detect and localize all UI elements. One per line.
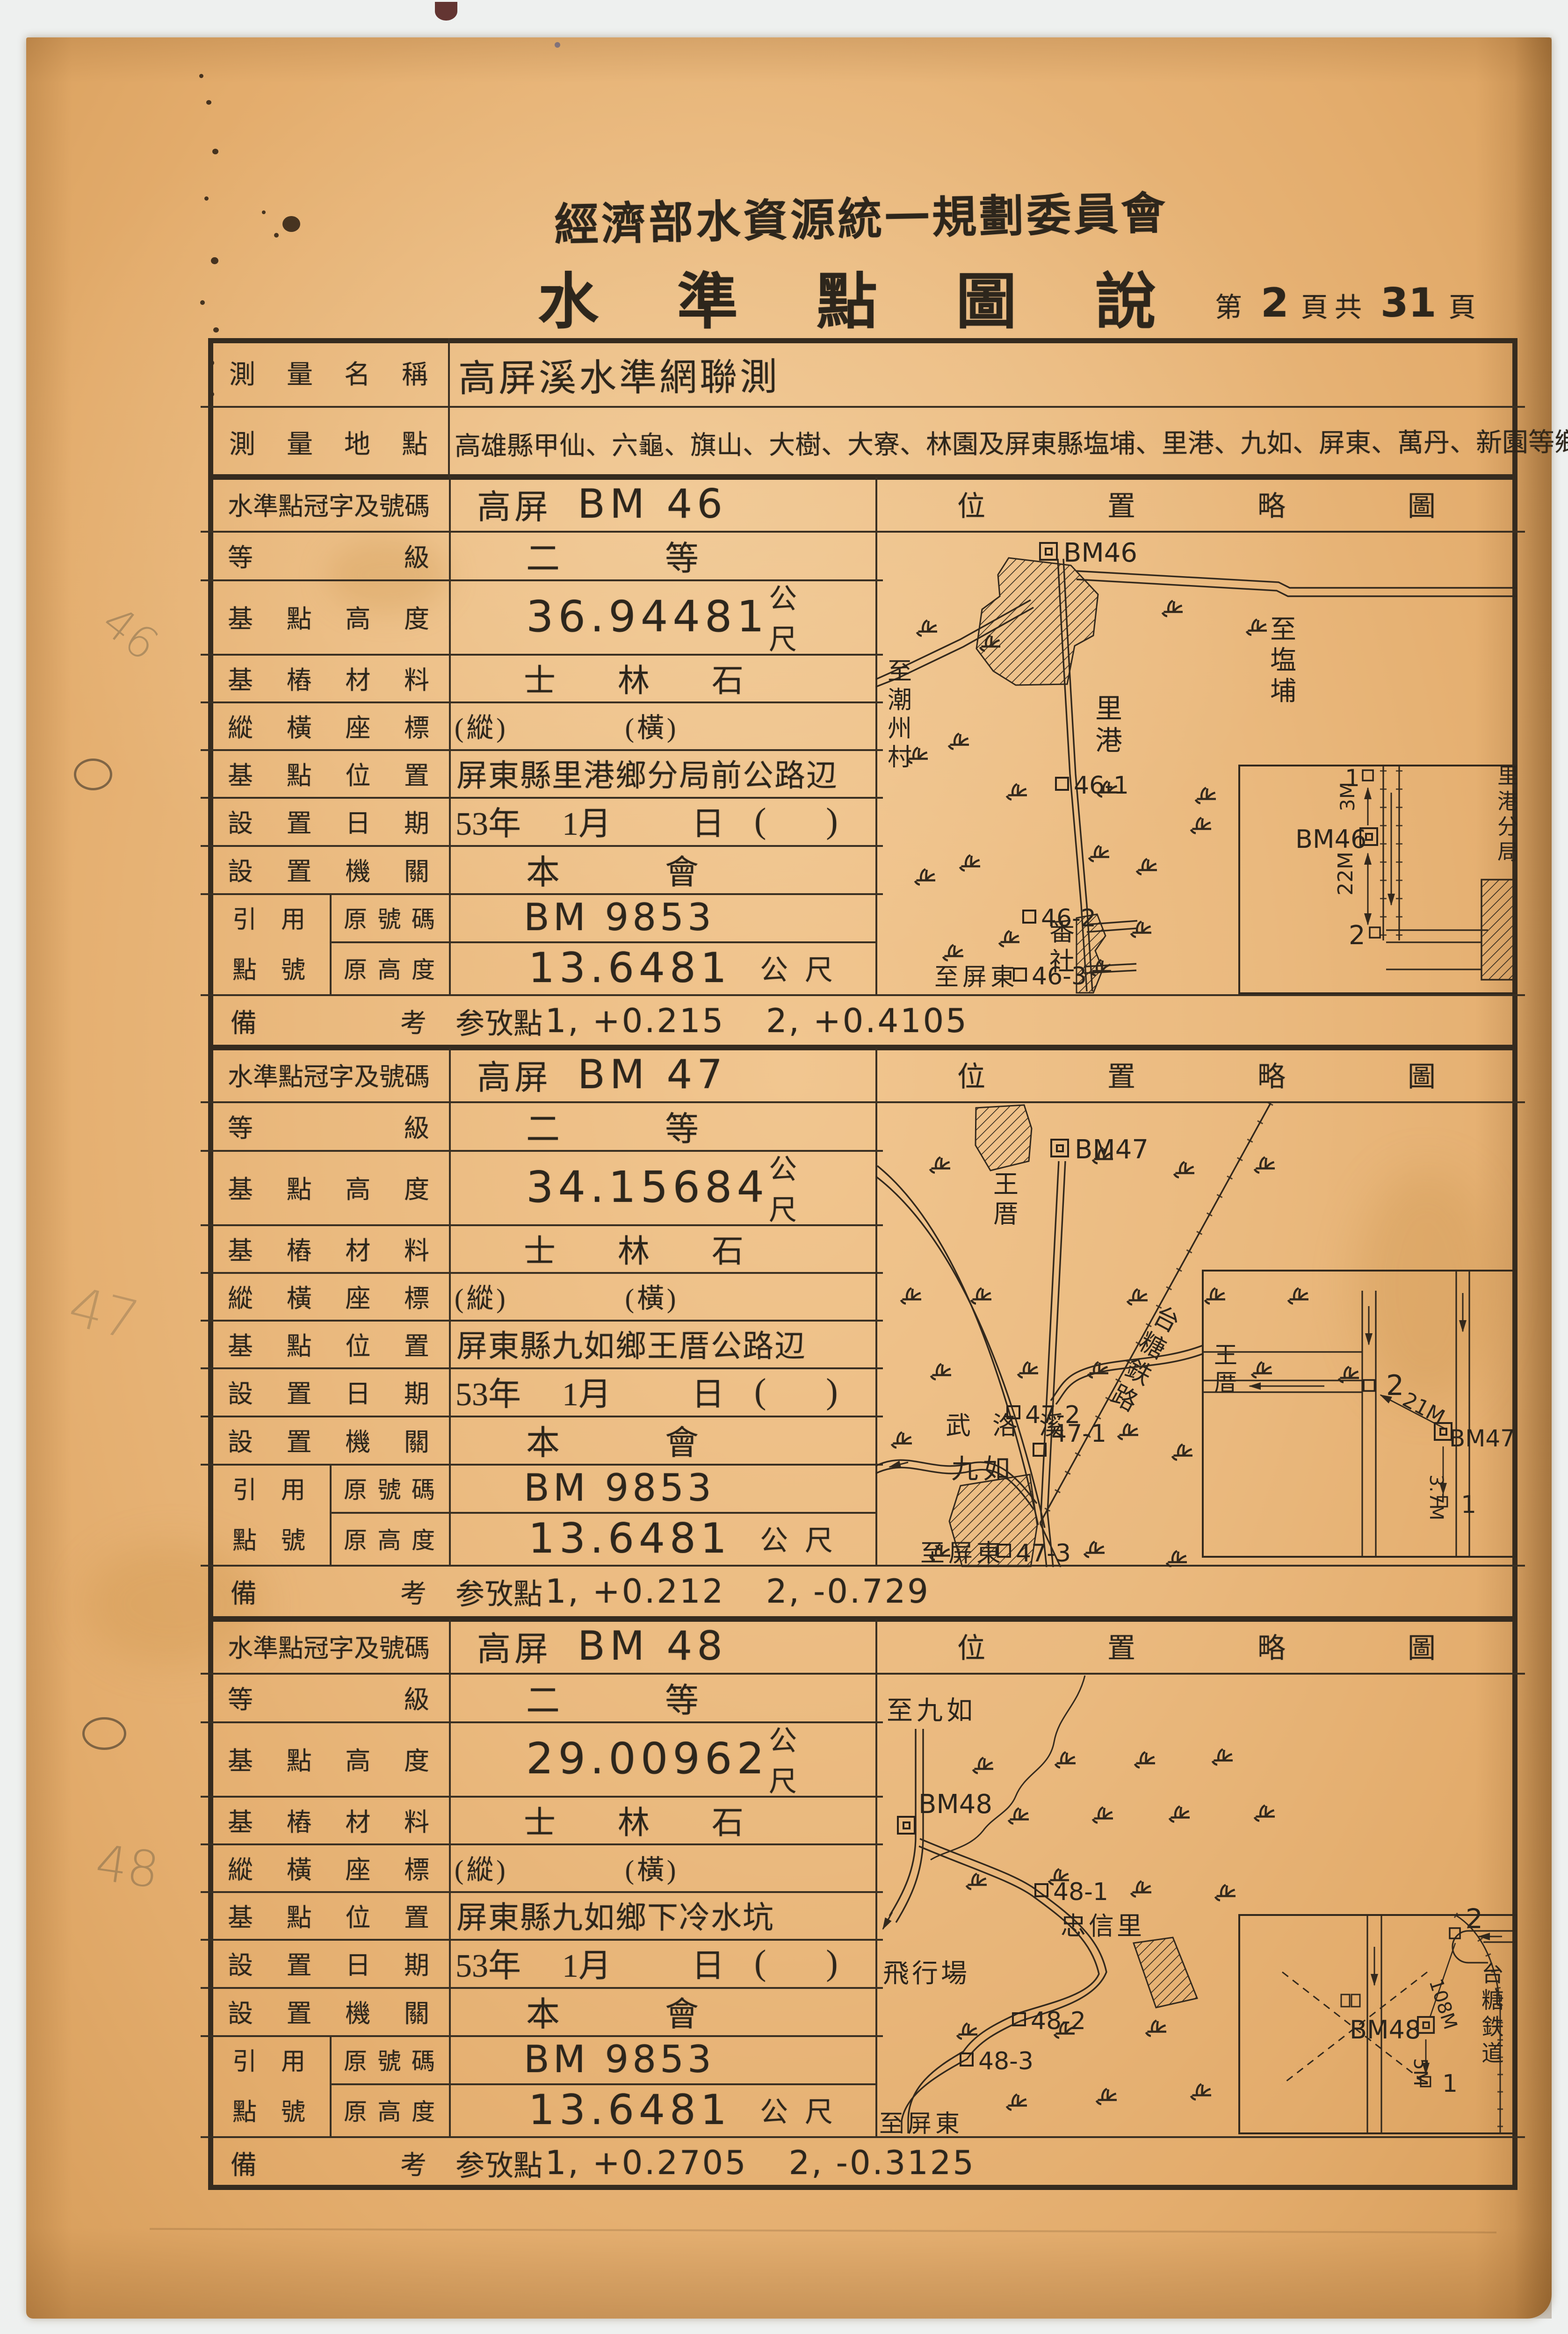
value-location: 屏東縣九如鄉下冷水坑 (449, 1891, 875, 1939)
label-grade: 等級 (208, 1101, 449, 1150)
label-ref-b: 點號 (208, 1512, 330, 1565)
organization-title: 經濟部水資源統一規劃委員會 (554, 177, 1177, 253)
inset-point2-label: 2 (1349, 920, 1366, 951)
point-47-2-label: 47-2 (1025, 1401, 1080, 1429)
ref-height-value: 13.6481 (528, 1514, 731, 1562)
bm48-marker (898, 1817, 915, 1834)
remark-ref1: 1, +0.2705 (545, 2144, 748, 2182)
bm47-marker (1051, 1140, 1068, 1156)
value-location: 屏東縣里港鄉分局前公路辺 (449, 749, 875, 797)
bm-id-number: BM 48 (578, 1623, 727, 1669)
document-title: 水準點圖說 (538, 253, 1235, 340)
value-ref-no: BM 9853 (449, 1464, 875, 1512)
label-survey-name: 測量名稱 (208, 338, 449, 407)
remark-label-b: 考 (400, 1002, 426, 1040)
coord-vertical: (縱) (455, 1276, 508, 1315)
inset-distance-3m: 3M (1336, 782, 1359, 811)
scanned-benchmark-sheet: 46 47 48 經濟部水資源統一規劃委員會 水準點圖說 第 2 頁共 31 頁… (0, 0, 1568, 2334)
inset-detail-bm48: 2 台糖鉄道 108M BM48 5M 1 (1239, 1903, 1517, 2133)
label-date: 設置日期 (208, 1367, 449, 1416)
label-grade: 等級 (208, 1673, 449, 1721)
point-48-3-label: 48-3 (978, 2047, 1033, 2075)
ink-speck (206, 100, 211, 105)
point-46-1-marker (1056, 778, 1068, 790)
value-material: 士林石 (449, 654, 875, 701)
label-ref-b: 點號 (208, 2083, 330, 2136)
building-area (1134, 1937, 1197, 2008)
inset-point1-label: 1 (1442, 2070, 1458, 2098)
ref-no-value: BM 9853 (524, 1466, 715, 1510)
date-paren-open: ( (754, 801, 766, 841)
grade-second: 等 (665, 531, 699, 580)
label-height: 基點高度 (208, 579, 449, 654)
map-title: 位置略圖 (875, 477, 1517, 531)
ink-speck (274, 233, 279, 238)
remark-ref1: 1, +0.215 (545, 1002, 725, 1040)
label-ref-height: 原高度 (330, 1512, 449, 1565)
inset-place-wangcuo: 王厝 (1214, 1342, 1237, 1396)
value-survey-name: 高屏溪水準網聯測 (449, 335, 1518, 410)
inset-detail-bm46: 1 3M BM46 22M 2 里港分局 (1239, 764, 1517, 993)
material-value: 士林石 (524, 1225, 744, 1272)
direction-yanpu: 至塩埔 (1270, 615, 1296, 706)
point-47-3-label: 47-3 (1016, 1539, 1071, 1567)
margin-circle (74, 759, 112, 790)
value-height: 29.00962 公尺 (449, 1721, 875, 1796)
bm-id-number: BM 46 (578, 481, 727, 527)
value-location: 屏東縣九如鄉王厝公路辺 (449, 1320, 875, 1367)
grade-first: 二 (526, 531, 560, 580)
ref-height-unit: 公尺 (760, 2089, 850, 2130)
page-no-suffix: 頁 (1449, 285, 1482, 325)
height-value: 29.00962 (526, 1734, 769, 1784)
point-46-2-marker (1023, 910, 1035, 923)
value-height: 36.94481 公尺 (449, 579, 875, 654)
town-label-zhongxinli: 忠信里 (1061, 1912, 1145, 1940)
town-label-fanshe: 番社 (1049, 918, 1075, 976)
ref-no-value: BM 9853 (524, 2038, 715, 2081)
height-unit: 公尺 (769, 576, 850, 658)
label-agency: 設置機關 (208, 845, 449, 893)
date-year: 53年 (455, 1939, 521, 1987)
value-survey-area: 高雄縣甲仙、六龜、旗山、大樹、大寮、林園及屏東縣塩埔、里港、九如、屏東、萬丹、新… (449, 405, 1518, 479)
direction-pingtung: 至屏東 (920, 1540, 1004, 1567)
value-material: 士林石 (449, 1796, 875, 1843)
value-agency: 本 會 (449, 845, 875, 893)
page-no-total: 31 (1380, 280, 1437, 326)
inset-detail-bm47: 王厝 2 21M BM47 (1203, 1271, 1517, 1557)
ink-speck (262, 210, 266, 214)
bm-id-prefix: 高屏 (477, 479, 552, 528)
label-remark: 備 考 (208, 994, 449, 1048)
material-value: 士林石 (524, 1797, 744, 1843)
remark-label-b: 考 (400, 1573, 426, 1611)
inset-distance-22m: 22M (1334, 852, 1358, 896)
margin-circle (82, 1717, 126, 1750)
coord-vertical: (縱) (455, 1848, 508, 1887)
remark-prefix: 参攷點 (455, 1000, 542, 1042)
value-material: 士林石 (449, 1224, 875, 1272)
value-coords: (縱) (橫) (449, 701, 875, 749)
bm46-map-label: BM46 (1063, 538, 1137, 568)
value-ref-no: BM 9853 (449, 893, 875, 941)
inset-point1-label: 1 (1461, 1491, 1476, 1519)
town-area-ligang (976, 558, 1098, 685)
date-paren-open: ( (754, 1371, 766, 1412)
date-day: 日 (692, 1368, 724, 1415)
label-material: 基樁材料 (208, 654, 449, 701)
label-coords: 縱橫座標 (208, 701, 449, 749)
value-agency: 本 會 (449, 1987, 875, 2035)
town-label-jiuru: 九如 (951, 1454, 1015, 1484)
direction-pingtung: 至屏東 (934, 964, 1019, 991)
location-sketch-map-bm46: BM46 46-1 46-2 46-3 里港 番社 至塩埔 至潮州村 至屏東 (875, 531, 1517, 994)
label-ref-a: 引用 (208, 1464, 330, 1512)
remark-prefix: 参攷點 (455, 1570, 542, 1612)
label-ref-no: 原號碼 (330, 893, 449, 941)
value-remark: 参攷點 1, +0.212 2, -0.729 (449, 1565, 1517, 1618)
benchmark-section-bm48: 水準點冠字及號碼 高屏 BM 48 等級 二 等 基點高度 29.00962 公… (208, 1619, 1517, 2189)
label-bm-id: 水準點冠字及號碼 (208, 477, 449, 531)
page-no-current: 2 (1261, 280, 1289, 326)
grade-first: 二 (526, 1673, 560, 1722)
inset-bm48-label: BM48 (1350, 2015, 1421, 2045)
value-coords: (縱) (橫) (449, 1272, 875, 1320)
label-location: 基點位置 (208, 1320, 449, 1367)
label-height: 基點高度 (208, 1721, 449, 1796)
direction-pingtung: 至屏東 (879, 2111, 963, 2136)
page-no-mid: 頁共 (1301, 285, 1368, 325)
inset-place-ligang-branch: 里港分局 (1497, 764, 1517, 864)
inset-bm46-label: BM46 (1295, 824, 1366, 854)
map-title: 位置略圖 (875, 1619, 1517, 1673)
remark-label-b: 考 (400, 2144, 426, 2182)
remark-ref2: 2, -0.729 (766, 1572, 930, 1611)
direction-chaozhou: 至潮州村 (888, 658, 912, 771)
ref-height-unit: 公尺 (760, 1518, 850, 1559)
value-bm-id: 高屏 BM 48 (449, 1619, 875, 1673)
page-number: 第 2 頁共 31 頁 (1215, 280, 1482, 326)
value-date: 53年 1月 日 ( ) (449, 1939, 875, 1987)
label-ref-no: 原號碼 (330, 1464, 449, 1512)
date-paren-open: ( (754, 1943, 766, 1983)
height-unit: 公尺 (769, 1147, 850, 1228)
inset-bm47-label: BM47 (1449, 1425, 1515, 1452)
value-date: 53年 1月 日 ( ) (449, 797, 875, 845)
benchmark-section-bm47: 水準點冠字及號碼 高屏 BM 47 等級 二 等 基點高度 34.15684 公… (208, 1048, 1517, 1618)
ink-blot (282, 216, 300, 232)
ink-speck (204, 196, 209, 201)
building-wangcuo (975, 1105, 1032, 1171)
date-day: 日 (692, 797, 724, 845)
airfield-label: 飛行場 (883, 1959, 970, 1988)
value-grade: 二 等 (449, 531, 875, 579)
label-remark: 備 考 (208, 1565, 449, 1618)
bm-id-number: BM 47 (578, 1051, 727, 1098)
value-ref-height: 13.6481 公尺 (449, 2083, 875, 2136)
bm47-map-label: BM47 (1075, 1134, 1149, 1165)
remark-ref2: 2, -0.3125 (789, 2144, 975, 2182)
location-sketch-map-bm47: 台糖鉄路 BM47 王厝 47-1 (875, 1101, 1517, 1565)
bm48-map-label: BM48 (918, 1789, 992, 1820)
height-value: 36.94481 (526, 592, 769, 642)
material-value: 士林石 (524, 655, 744, 701)
pencil-note-48: 48 (92, 1834, 163, 1900)
ink-speck (213, 327, 219, 332)
label-date: 設置日期 (208, 1939, 449, 1987)
agency-second: 會 (665, 1415, 699, 1464)
benchmark-section-bm46: 水準點冠字及號碼 高屏 BM 46 等級 二 等 基點高度 36.94481 公… (208, 477, 1517, 1048)
date-paren-close: ) (826, 1371, 838, 1412)
railway-label: 台糖鉄路 (1107, 1301, 1185, 1417)
ink-speck (199, 74, 203, 78)
coord-horizontal: (橫) (625, 1848, 679, 1887)
label-coords: 縱橫座標 (208, 1272, 449, 1320)
grade-first: 二 (526, 1101, 560, 1150)
value-remark: 参攷點 1, +0.2705 2, -0.3125 (449, 2136, 1517, 2189)
agency-second: 會 (665, 845, 699, 894)
remark-prefix: 参攷點 (455, 2142, 542, 2184)
date-month: 1月 (562, 1368, 611, 1415)
value-remark: 参攷點 1, +0.215 2, +0.4105 (449, 994, 1517, 1048)
ink-speck (200, 300, 205, 305)
remark-label-a: 備 (231, 1002, 257, 1040)
date-paren-close: ) (826, 1943, 838, 1983)
label-material: 基樁材料 (208, 1224, 449, 1272)
point-48-2-label: 48-2 (1031, 2007, 1086, 2035)
ref-height-unit: 公尺 (760, 947, 850, 988)
label-coords: 縱橫座標 (208, 1843, 449, 1891)
label-location: 基點位置 (208, 1891, 449, 1939)
value-bm-id: 高屏 BM 47 (449, 1048, 875, 1101)
date-month: 1月 (562, 797, 611, 845)
ref-no-value: BM 9853 (524, 896, 715, 939)
date-day: 日 (692, 1939, 724, 1987)
coord-vertical: (縱) (455, 706, 508, 745)
label-agency: 設置機關 (208, 1987, 449, 2035)
value-agency: 本 會 (449, 1416, 875, 1464)
value-grade: 二 等 (449, 1673, 875, 1721)
remark-ref2: 2, +0.4105 (766, 1002, 968, 1040)
value-ref-height: 13.6481 公尺 (449, 941, 875, 994)
height-value: 34.15684 (526, 1162, 769, 1212)
label-grade: 等級 (208, 531, 449, 579)
label-location: 基點位置 (208, 749, 449, 797)
value-ref-height: 13.6481 公尺 (449, 1512, 875, 1565)
date-year: 53年 (455, 1368, 521, 1415)
value-date: 53年 1月 日 ( ) (449, 1367, 875, 1416)
point-48-1-label: 48-1 (1053, 1878, 1108, 1906)
label-remark: 備 考 (208, 2136, 449, 2189)
grade-second: 等 (665, 1101, 699, 1150)
remark-label-a: 備 (231, 2144, 257, 2182)
ink-speck (212, 149, 218, 154)
agency-first: 本 (526, 1415, 560, 1464)
label-survey-area: 測量地點 (208, 407, 449, 477)
town-label-ligang: 里港 (1095, 694, 1122, 756)
value-ref-no: BM 9853 (449, 2035, 875, 2083)
bm46-marker (1040, 543, 1057, 560)
date-month: 1月 (562, 1939, 611, 1987)
location-sketch-map-bm48: 至九如 BM48 48-1 忠信里 飛行場 48-2 48-3 至屏東 (875, 1673, 1517, 2136)
value-height: 34.15684 公尺 (449, 1150, 875, 1224)
direction-jiuru: 至九如 (887, 1697, 976, 1726)
remark-ref1: 1, +0.212 (545, 1572, 725, 1611)
grade-second: 等 (665, 1673, 699, 1722)
inset-distance-108m: 108M (1424, 1976, 1461, 2032)
agency-first: 本 (526, 845, 560, 894)
date-year: 53年 (455, 797, 521, 845)
label-date: 設置日期 (208, 797, 449, 845)
bm-id-prefix: 高屏 (477, 1621, 552, 1670)
label-ref-a: 引用 (208, 2035, 330, 2083)
label-ref-height: 原高度 (330, 2083, 449, 2136)
label-ref-height: 原高度 (330, 941, 449, 994)
coord-horizontal: (橫) (625, 1276, 679, 1315)
inset-point2-label: 2 (1466, 1903, 1483, 1935)
ref-height-value: 13.6481 (528, 2086, 731, 2134)
inset-point2-label: 2 (1386, 1369, 1404, 1402)
date-paren-close: ) (826, 801, 838, 841)
label-ref-a: 引用 (208, 893, 330, 941)
label-agency: 設置機關 (208, 1416, 449, 1464)
label-bm-id: 水準點冠字及號碼 (208, 1048, 449, 1101)
label-bm-id: 水準點冠字及號碼 (208, 1619, 449, 1673)
ref-height-value: 13.6481 (528, 944, 731, 992)
value-bm-id: 高屏 BM 46 (449, 477, 875, 531)
label-ref-no: 原號碼 (330, 2035, 449, 2083)
town-label-wangcuo: 王厝 (993, 1171, 1019, 1228)
value-coords: (縱) (橫) (449, 1843, 875, 1891)
bm-id-prefix: 高屏 (477, 1050, 552, 1099)
coord-horizontal: (橫) (625, 706, 679, 745)
value-grade: 二 等 (449, 1101, 875, 1150)
height-unit: 公尺 (769, 1718, 850, 1799)
label-ref-b: 點號 (208, 941, 330, 994)
stamp-mark (435, 2, 457, 21)
agency-first: 本 (526, 1987, 560, 2036)
agency-second: 會 (665, 1987, 699, 2036)
pen-dot (555, 42, 560, 48)
map-title: 位置略圖 (875, 1048, 1517, 1101)
remark-label-a: 備 (231, 1573, 257, 1611)
page-no-prefix: 第 (1215, 285, 1249, 325)
ink-speck (211, 257, 218, 264)
label-height: 基點高度 (208, 1150, 449, 1224)
label-material: 基樁材料 (208, 1796, 449, 1843)
